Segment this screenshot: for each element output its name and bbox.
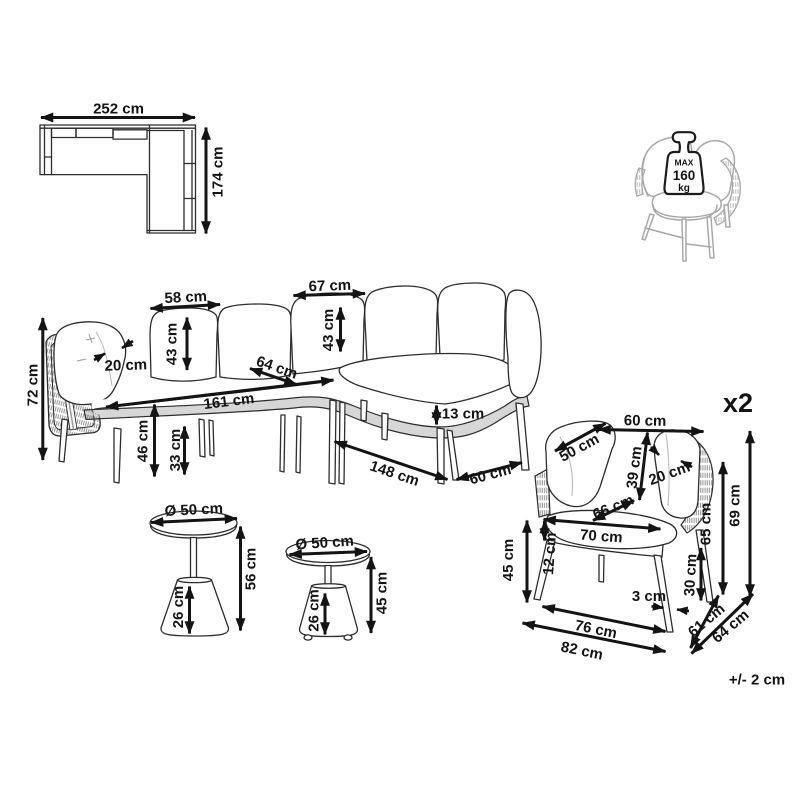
svg-text:13 cm: 13 cm [442,406,485,423]
svg-text:252 cm: 252 cm [93,101,144,118]
svg-text:+/- 2 cm: +/- 2 cm [729,672,785,689]
svg-text:45 cm: 45 cm [374,572,391,615]
svg-text:72 cm: 72 cm [25,364,42,407]
svg-text:33 cm: 33 cm [167,429,184,472]
svg-text:MAX: MAX [675,158,694,168]
svg-text:20 cm: 20 cm [104,356,147,374]
svg-text:69 cm: 69 cm [727,484,744,527]
svg-text:43 cm: 43 cm [320,309,337,352]
svg-text:65 cm: 65 cm [698,503,715,546]
svg-text:67 cm: 67 cm [308,277,351,295]
svg-text:26 cm: 26 cm [306,589,323,632]
svg-text:30 cm: 30 cm [681,553,700,596]
svg-text:45 cm: 45 cm [500,539,517,582]
svg-text:26 cm: 26 cm [170,586,187,629]
svg-text:12 cm: 12 cm [540,532,560,576]
svg-text:46 cm: 46 cm [135,420,152,463]
svg-text:174 cm: 174 cm [210,147,227,198]
svg-text:43 cm: 43 cm [164,323,181,366]
svg-text:60 cm: 60 cm [624,412,667,430]
svg-text:3 cm: 3 cm [632,588,666,605]
svg-text:70 cm: 70 cm [579,527,623,547]
svg-text:58 cm: 58 cm [164,288,207,307]
svg-text:56 cm: 56 cm [243,548,260,591]
svg-text:160: 160 [673,168,696,183]
svg-text:x2: x2 [723,388,753,418]
svg-text:kg: kg [678,183,690,194]
svg-text:Ø 50 cm: Ø 50 cm [164,500,223,520]
